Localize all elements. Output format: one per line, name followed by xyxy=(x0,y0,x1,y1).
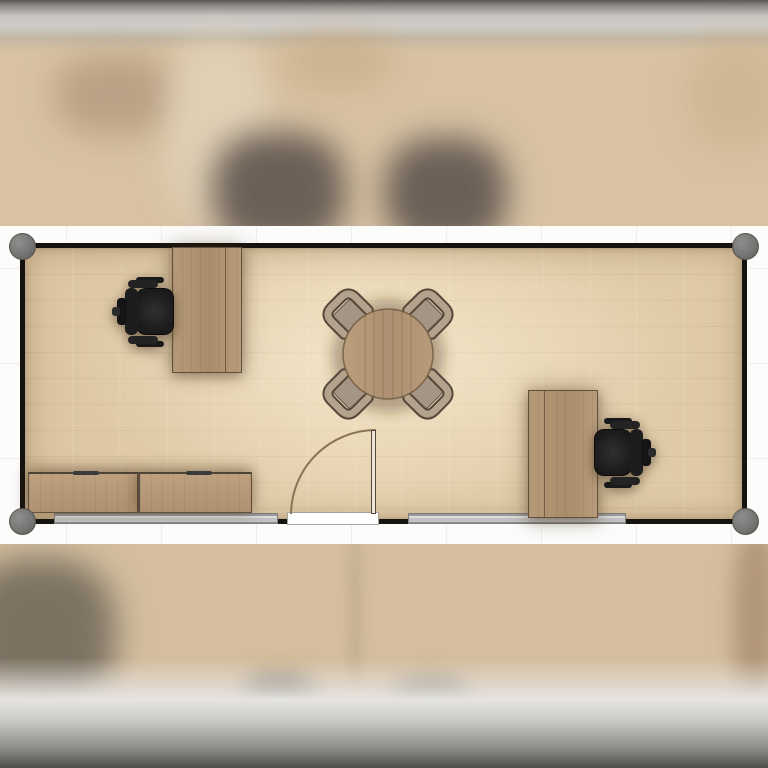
window-bottom-left[interactable] xyxy=(54,513,278,524)
chair-armrest xyxy=(610,421,640,429)
cabinet-left[interactable] xyxy=(28,472,138,513)
door-swing-arc xyxy=(286,426,380,520)
floor-planner-viewport xyxy=(0,0,768,768)
cabinet-handle xyxy=(73,471,99,475)
chair-base-knob xyxy=(648,448,656,457)
office-chair-left[interactable] xyxy=(112,280,174,344)
chair-armrest xyxy=(128,280,158,288)
chair-armrest xyxy=(610,477,640,485)
round-table-top xyxy=(343,309,433,399)
meeting-table-set[interactable] xyxy=(303,269,473,439)
corner-post-bottom-left xyxy=(9,508,36,535)
desk-right[interactable] xyxy=(528,390,598,518)
office-chair-right[interactable] xyxy=(594,421,656,485)
blurred-gray-band xyxy=(0,658,768,768)
chair-seat xyxy=(136,288,174,335)
chair-armrest xyxy=(128,336,158,344)
door-leaf[interactable] xyxy=(371,430,376,514)
blurred-chair-blob xyxy=(385,138,507,230)
chair-seat xyxy=(594,429,632,476)
corner-post-top-right xyxy=(732,233,759,260)
cabinet-handle xyxy=(186,471,212,475)
blurred-furniture-blob xyxy=(282,35,392,90)
blurred-room-above xyxy=(0,0,768,230)
desk-top-left[interactable] xyxy=(172,247,242,373)
cabinet-right[interactable] xyxy=(138,472,252,513)
corner-post-bottom-right xyxy=(732,508,759,535)
corner-post-top-left xyxy=(9,233,36,260)
desk-edge-line xyxy=(544,391,545,517)
chair-base-knob xyxy=(112,307,120,316)
blurred-furniture-blob xyxy=(55,55,175,135)
desk-edge-line xyxy=(225,248,226,372)
blurred-chair-blob xyxy=(213,133,345,230)
blurred-room-below xyxy=(0,541,768,768)
blurred-furniture-blob xyxy=(688,40,768,150)
